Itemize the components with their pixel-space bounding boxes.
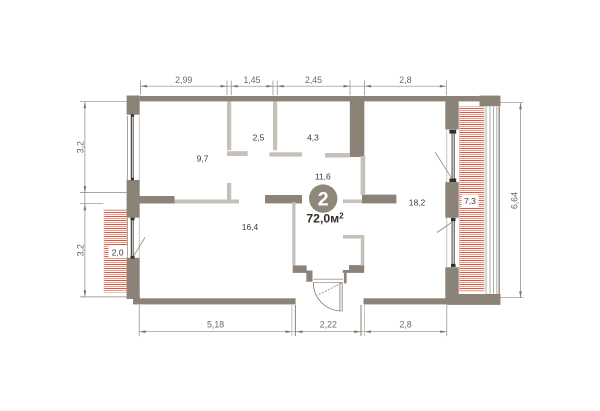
- svg-text:2,45: 2,45: [305, 75, 322, 85]
- svg-text:5,18: 5,18: [207, 320, 224, 330]
- svg-text:2,0: 2,0: [112, 248, 124, 258]
- svg-text:6,64: 6,64: [509, 192, 519, 209]
- svg-text:1,45: 1,45: [243, 75, 260, 85]
- svg-text:2,22: 2,22: [320, 320, 337, 330]
- svg-text:18,2: 18,2: [409, 198, 426, 208]
- svg-text:11,6: 11,6: [315, 171, 331, 181]
- svg-text:2,99: 2,99: [175, 75, 192, 85]
- svg-text:2: 2: [318, 188, 329, 210]
- svg-text:72,0м2: 72,0м2: [306, 211, 344, 225]
- svg-text:16,4: 16,4: [242, 222, 259, 232]
- svg-text:4,3: 4,3: [307, 133, 319, 143]
- svg-text:2,8: 2,8: [399, 320, 411, 330]
- svg-text:9,7: 9,7: [197, 154, 209, 164]
- svg-text:3,2: 3,2: [76, 244, 86, 256]
- svg-text:2,8: 2,8: [399, 75, 411, 85]
- svg-text:7,3: 7,3: [464, 196, 476, 206]
- svg-text:3,2: 3,2: [76, 141, 86, 153]
- svg-text:2,5: 2,5: [253, 133, 265, 143]
